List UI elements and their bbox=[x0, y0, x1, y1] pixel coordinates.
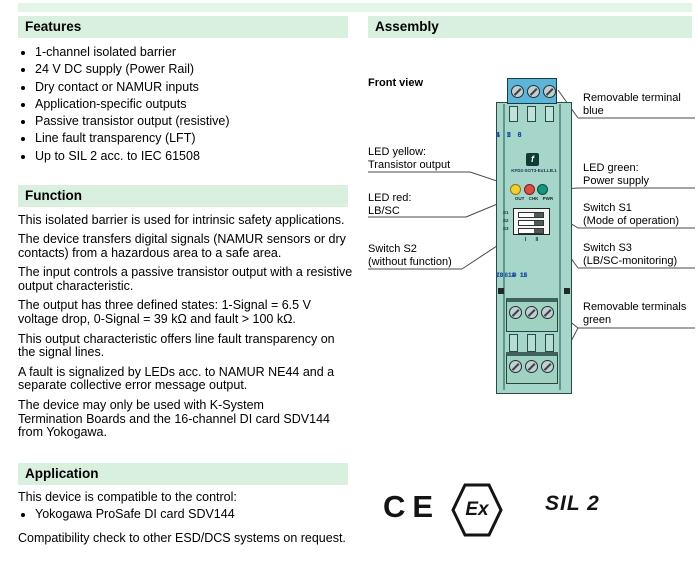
dip-switch-row bbox=[518, 220, 544, 226]
dip-switch-block bbox=[513, 208, 550, 235]
switch-label-s3: S3 bbox=[503, 226, 513, 231]
terminal-pin bbox=[545, 334, 554, 352]
features-title: Features bbox=[25, 19, 81, 34]
callout-led-yellow: LED yellow: Transistor output bbox=[368, 146, 498, 172]
application-item: Yokogawa ProSafe DI card SDV144 bbox=[35, 506, 354, 522]
switch-label-s1: S1 bbox=[503, 210, 513, 215]
callout-terminals-green: Removable terminals green bbox=[583, 301, 698, 327]
datasheet-page: Features 1-channel isolated barrier 24 V… bbox=[0, 0, 698, 572]
callout-line: blue bbox=[583, 105, 698, 118]
switch-knob-icon bbox=[534, 213, 543, 217]
dip-switch-row bbox=[518, 212, 544, 218]
callout-line: (without function) bbox=[368, 256, 498, 269]
function-paragraph: The device may only be used with K-Syste… bbox=[18, 399, 354, 440]
terminal-number-row: 13 14 15 bbox=[496, 271, 527, 280]
assembly-title: Assembly bbox=[375, 19, 439, 34]
switch-knob-icon bbox=[534, 221, 543, 225]
function-text: This isolated barrier is used for intrin… bbox=[18, 214, 354, 446]
application-title: Application bbox=[25, 466, 99, 481]
callout-line: green bbox=[583, 314, 698, 327]
terminal-pin bbox=[527, 106, 536, 122]
function-title: Function bbox=[25, 188, 82, 203]
callout-terminal-blue: Removable terminal blue bbox=[583, 92, 698, 118]
callout-switch-s1: Switch S1 (Mode of operation) bbox=[583, 202, 698, 228]
terminal-screw-icon bbox=[509, 360, 522, 373]
terminal-screw-icon bbox=[543, 85, 556, 98]
terminal-pin bbox=[545, 106, 554, 122]
switch-knob-icon bbox=[534, 229, 543, 233]
dip-switch-row bbox=[518, 228, 544, 234]
function-paragraph: This isolated barrier is used for intrin… bbox=[18, 214, 354, 228]
terminal-pin bbox=[509, 334, 518, 352]
function-paragraph: The output has three defined states: 1-S… bbox=[18, 299, 354, 327]
feature-item: Application-specific outputs bbox=[35, 96, 348, 113]
clamp-icon bbox=[498, 288, 504, 294]
led-green-icon bbox=[537, 184, 548, 195]
ex-mark-text: Ex bbox=[451, 499, 503, 521]
callout-line: Removable terminal bbox=[583, 92, 698, 105]
switch-label-s2: S2 bbox=[503, 218, 513, 223]
feature-item: Up to SIL 2 acc. to IEC 61508 bbox=[35, 148, 348, 165]
terminal-screw-icon bbox=[541, 306, 554, 319]
terminal-screw-icon bbox=[509, 306, 522, 319]
function-paragraph: A fault is signalized by LEDs acc. to NA… bbox=[18, 366, 354, 394]
callout-line: Transistor output bbox=[368, 159, 498, 172]
callout-line: Switch S2 bbox=[368, 243, 498, 256]
device-model-label: KFD2-SOT3-Ex1.LB.1 bbox=[496, 168, 572, 173]
callout-line: Removable terminals bbox=[583, 301, 698, 314]
switch-scale-label: I II bbox=[513, 237, 550, 243]
application-intro: This device is compatible to the control… bbox=[18, 491, 354, 505]
clamp-icon bbox=[564, 288, 570, 294]
ex-mark: Ex bbox=[451, 482, 503, 538]
function-section-header: Function bbox=[18, 185, 348, 207]
top-divider-strip bbox=[18, 3, 692, 12]
led-red-icon bbox=[524, 184, 535, 195]
feature-item: 24 V DC supply (Power Rail) bbox=[35, 61, 348, 78]
callout-line: (Mode of operation) bbox=[583, 215, 698, 228]
feature-item: Line fault transparency (LFT) bbox=[35, 130, 348, 147]
terminal-pin bbox=[527, 334, 536, 352]
ce-mark: CE bbox=[383, 489, 440, 525]
callout-led-red: LED red: LB/SC bbox=[368, 192, 498, 218]
terminal-screw-icon bbox=[525, 306, 538, 319]
callout-line: Switch S3 bbox=[583, 242, 698, 255]
assembly-section-header: Assembly bbox=[368, 16, 692, 38]
callout-line: Power supply bbox=[583, 175, 698, 188]
features-section-header: Features bbox=[18, 16, 348, 38]
callout-line: Switch S1 bbox=[583, 202, 698, 215]
features-list: 1-channel isolated barrier 24 V DC suppl… bbox=[18, 44, 348, 165]
application-text: This device is compatible to the control… bbox=[18, 491, 354, 546]
terminal-number-row: 4 5 6 bbox=[496, 131, 522, 140]
application-section-header: Application bbox=[18, 463, 348, 485]
callout-line: (LB/SC-monitoring) bbox=[583, 255, 698, 268]
application-note: Compatibility check to other ESD/DCS sys… bbox=[18, 532, 354, 546]
function-paragraph: The input controls a passive transistor … bbox=[18, 266, 354, 294]
callout-line: LB/SC bbox=[368, 205, 498, 218]
terminal-screw-icon bbox=[511, 85, 524, 98]
callout-line: LED green: bbox=[583, 162, 698, 175]
callout-led-green: LED green: Power supply bbox=[583, 162, 698, 188]
function-paragraph: The device transfers digital signals (NA… bbox=[18, 233, 354, 261]
led-yellow-icon bbox=[510, 184, 521, 195]
terminal-screw-icon bbox=[541, 360, 554, 373]
sil-rating: SIL 2 bbox=[545, 492, 600, 516]
callout-line: LED red: bbox=[368, 192, 498, 205]
terminal-screw-icon bbox=[525, 360, 538, 373]
callout-switch-s2: Switch S2 (without function) bbox=[368, 243, 498, 269]
callout-line: LED yellow: bbox=[368, 146, 498, 159]
callout-switch-s3: Switch S3 (LB/SC-monitoring) bbox=[583, 242, 698, 268]
feature-item: 1-channel isolated barrier bbox=[35, 44, 348, 61]
manufacturer-logo-icon: f bbox=[526, 153, 539, 166]
function-paragraph: This output characteristic offers line f… bbox=[18, 333, 354, 361]
terminal-screw-icon bbox=[527, 85, 540, 98]
terminal-pin bbox=[509, 106, 518, 122]
feature-item: Passive transistor output (resistive) bbox=[35, 113, 348, 130]
feature-item: Dry contact or NAMUR inputs bbox=[35, 79, 348, 96]
device-front-view: 1 2 3 4 5 6 f KFD2-SOT3-Ex1.LB.1 OUT CHK… bbox=[494, 76, 574, 396]
led-caption: OUT CHK PWR bbox=[496, 196, 572, 201]
